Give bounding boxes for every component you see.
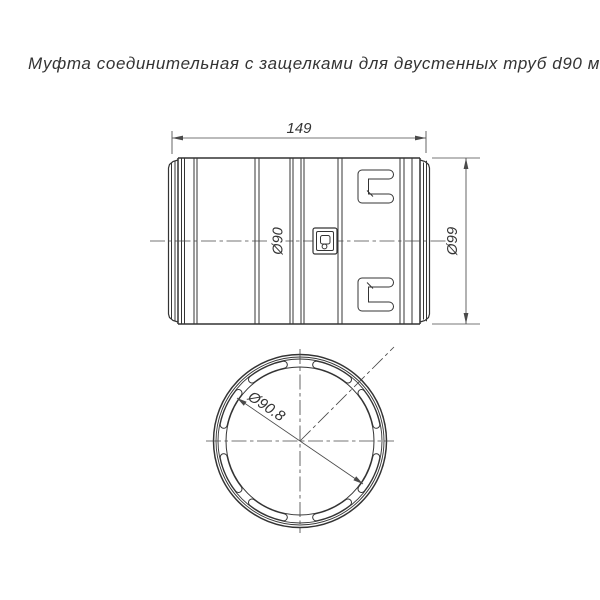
latch-window [313,228,337,254]
drawing-page: Муфта соединительная с защелками для дву… [0,0,600,600]
end-view-centerlines [206,347,394,533]
body-diameter-marking: Ø90 [270,221,287,261]
side-view: Ø90 [150,120,480,324]
dim-length-label: 149 [286,120,312,137]
snap-latch-top [358,170,394,203]
end-view: Ø90.8 [206,347,394,533]
snap-latch-bottom [358,278,394,311]
dim-inner-diameter-label: Ø90.8 [244,388,289,426]
dim-length: 149 [172,120,426,154]
technical-drawing: Ø90 [0,0,600,600]
dim-outer-diameter-label: Ø99 [444,226,461,256]
body-diameter-label: Ø90 [271,227,287,255]
